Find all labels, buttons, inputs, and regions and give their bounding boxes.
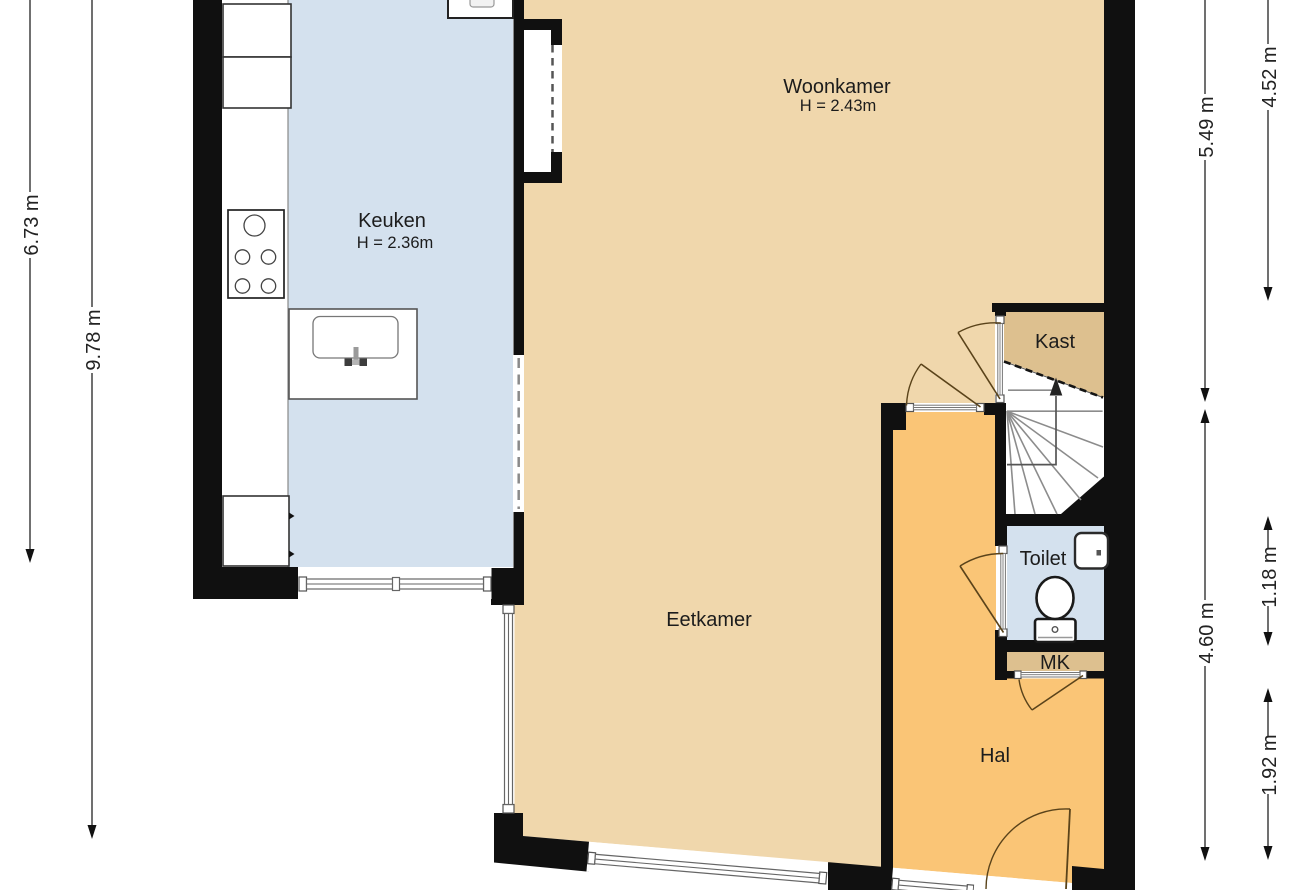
svg-text:1.18 m: 1.18 m (1259, 546, 1281, 607)
svg-text:H = 2.43m: H = 2.43m (800, 97, 877, 115)
svg-text:6.73 m: 6.73 m (21, 194, 43, 255)
svg-text:MK: MK (1040, 652, 1071, 674)
svg-text:Eetkamer: Eetkamer (666, 609, 752, 631)
svg-text:H = 2.36m: H = 2.36m (357, 234, 434, 252)
svg-text:Woonkamer: Woonkamer (783, 76, 891, 98)
svg-text:Kast: Kast (1035, 331, 1075, 353)
svg-text:Hal: Hal (980, 745, 1010, 767)
svg-text:1.92 m: 1.92 m (1259, 734, 1281, 795)
svg-text:Toilet: Toilet (1020, 548, 1067, 570)
svg-text:4.52 m: 4.52 m (1259, 46, 1281, 107)
svg-text:4.60 m: 4.60 m (1196, 602, 1218, 663)
svg-text:9.78 m: 9.78 m (83, 309, 105, 370)
svg-text:Keuken: Keuken (358, 210, 426, 232)
svg-text:5.49 m: 5.49 m (1196, 96, 1218, 157)
